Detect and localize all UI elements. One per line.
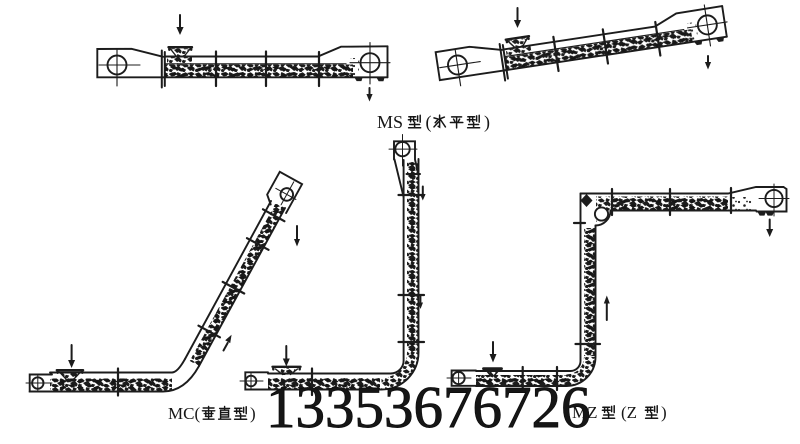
svg-text:): ) xyxy=(661,403,667,422)
svg-text:(: ( xyxy=(426,112,432,133)
svg-text:(Z: (Z xyxy=(621,403,637,422)
svg-text:): ) xyxy=(250,404,256,423)
svg-text:): ) xyxy=(484,112,490,133)
svg-text:MS: MS xyxy=(377,112,403,132)
svg-text:13353676726: 13353676726 xyxy=(266,374,591,440)
svg-text:MC(: MC( xyxy=(168,404,200,423)
